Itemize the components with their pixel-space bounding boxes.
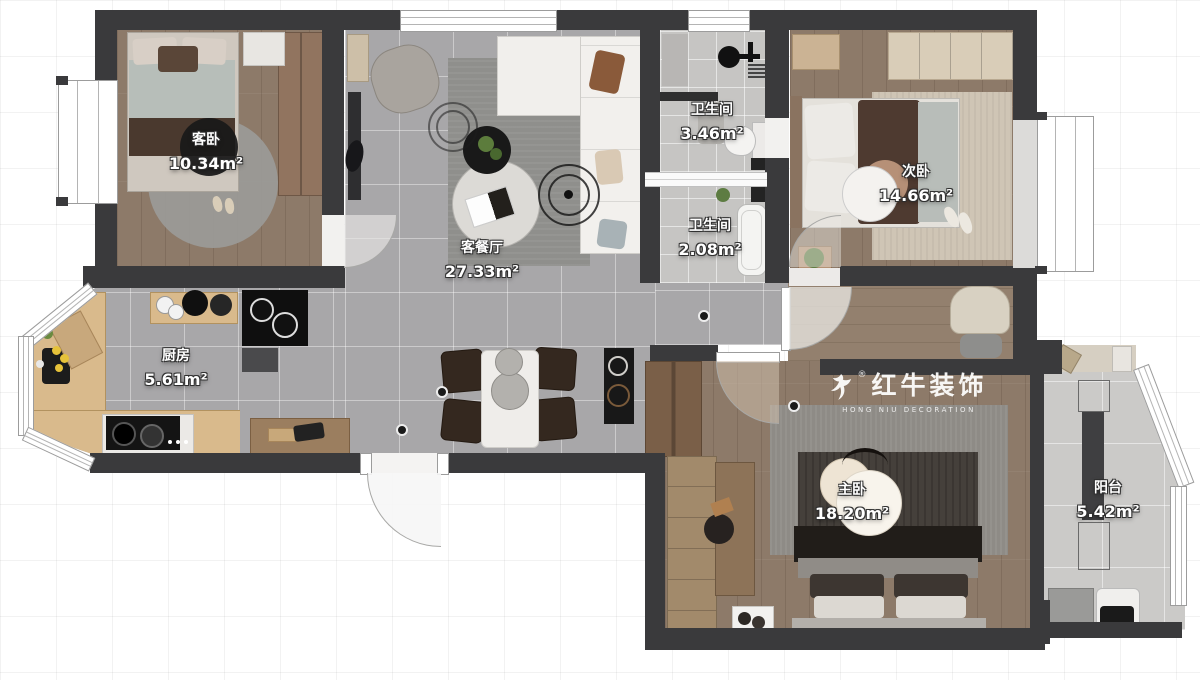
right-bay-window [1037, 116, 1094, 272]
vestibule-ottoman [960, 334, 1002, 358]
dining-chair-1 [440, 348, 486, 394]
sideboard-cup-1 [608, 356, 628, 376]
second-door-opening [789, 268, 840, 286]
bathtub-inner [741, 210, 762, 270]
dining-chair-3 [533, 347, 578, 392]
left-bay-window [58, 80, 118, 204]
sofa-pillow-beige [594, 149, 623, 186]
sofa-chaise [497, 36, 581, 116]
vestibule-armchair [950, 286, 1010, 334]
kitchen-lemon-1 [52, 346, 61, 355]
room-label-guest-bedroom: 客卧 10.34m² [169, 130, 243, 176]
registered-mark: ® [857, 370, 866, 380]
wall-bottom-left [90, 453, 367, 473]
room-area: 18.20m² [815, 502, 889, 527]
kitchen-lemon-3 [55, 364, 63, 372]
wall-left-upper [95, 10, 117, 82]
wall-bath-left [640, 10, 660, 283]
wall-second-bottom [840, 266, 1013, 286]
ceiling-light-marker-2 [698, 310, 710, 322]
floor-plan: 客卧 10.34m² 客餐厅 27.33m² 卫生间 3.46m² 卫生间 2.… [0, 0, 1200, 680]
living-top-window [400, 10, 557, 32]
brand-watermark: ® 红牛装饰 HONG NIU DECORATION [824, 372, 994, 414]
kitchen-burner-1 [112, 422, 136, 446]
ceiling-light-marker-4 [396, 424, 408, 436]
wall-balcony-bottom [1040, 622, 1182, 638]
fan-symbol-center [564, 190, 573, 199]
bath-top-window [688, 10, 750, 32]
brand-subtitle: HONG NIU DECORATION [842, 406, 976, 414]
room-label-living-dining: 客餐厅 27.33m² [445, 238, 519, 284]
bath-main-grate [748, 64, 766, 78]
dining-chair-2 [440, 398, 486, 444]
living-bookshelf [347, 34, 369, 82]
master-pillow-light-1 [814, 596, 884, 618]
master-desk-chair [704, 514, 734, 544]
room-name: 次卧 [902, 162, 930, 184]
wall-balcony-divider [1030, 374, 1044, 630]
bath-small-plant [716, 188, 730, 202]
right-bay-corner-top [1035, 112, 1047, 120]
wall-bottom-entry-right [440, 453, 665, 473]
room-name: 卫生间 [691, 100, 733, 122]
wall-master-left [645, 453, 665, 650]
sofa-pillow-gray [596, 218, 628, 250]
master-pillow-dark-2 [894, 574, 968, 598]
master-pillow-dark-1 [810, 574, 884, 598]
kitchen-knob-1 [168, 440, 172, 444]
kitchen-knob-3 [184, 440, 188, 444]
kitchen-knob-2 [176, 440, 180, 444]
bath-main-faucet-stem [748, 42, 753, 62]
entry-door-jamb-left [360, 453, 372, 475]
ceiling-light-marker-1 [436, 386, 448, 398]
second-dresser [792, 34, 840, 70]
room-label-bathroom-main: 卫生间 3.46m² [680, 100, 743, 146]
room-label-kitchen: 厨房 5.61m² [144, 346, 207, 392]
kitchen-plate-2 [168, 304, 184, 320]
left-bay-corner-bottom [56, 197, 68, 206]
wall-corridor-bottom [650, 345, 718, 361]
kitchen-pot-2 [210, 294, 232, 316]
kitchen-cabinet-small [242, 348, 278, 372]
entry-door-threshold [370, 453, 437, 473]
wall-right-upper [1013, 10, 1037, 120]
bath-sliding-door [645, 172, 767, 187]
balcony-outline-bottom [1078, 522, 1110, 570]
left-bay-corner-top [56, 76, 68, 85]
kitchen-burner-2 [140, 424, 164, 448]
brand-name: 红牛装饰 [871, 372, 987, 400]
kitchen-bay-window-mid [18, 336, 34, 436]
ceiling-light-marker-3 [788, 400, 800, 412]
headphones-arc [842, 448, 888, 482]
room-name: 客卧 [192, 130, 220, 152]
guest-pillow-dark [158, 46, 198, 72]
right-bay-corner-bottom [1035, 266, 1047, 274]
wall-top [95, 10, 1037, 30]
second-wardrobe [888, 32, 1015, 80]
room-label-master-bedroom: 主卧 18.20m² [815, 480, 889, 526]
kitchen-faucet [36, 360, 44, 368]
guest-cabinet-box [243, 32, 285, 66]
room-area: 27.33m² [445, 260, 519, 285]
room-name: 客餐厅 [461, 238, 503, 260]
corridor-floor [655, 283, 788, 345]
dining-plate-large [491, 372, 529, 410]
room-area: 3.46m² [680, 122, 743, 147]
master-closet-door-panel [645, 361, 702, 457]
entry-door-jamb-right [437, 453, 449, 475]
entry-bench-deco [268, 428, 296, 442]
fridge-pot-2 [272, 312, 298, 338]
room-label-balcony: 阳台 5.42m² [1076, 478, 1139, 524]
room-area: 10.34m² [169, 152, 243, 177]
guest-door-opening [322, 215, 344, 266]
right-bay-sill [1013, 120, 1037, 268]
room-label-bathroom-small: 卫生间 2.08m² [678, 216, 741, 262]
master-throw-dark [794, 526, 982, 562]
room-name: 厨房 [162, 346, 190, 368]
room-name: 阳台 [1094, 478, 1122, 500]
bath-main-corner-box [751, 158, 765, 170]
second-bed-headboard [790, 96, 802, 228]
wall-master-bottom [655, 628, 1045, 650]
sideboard-cup-2 [607, 384, 630, 407]
room-area: 5.42m² [1076, 500, 1139, 525]
balcony-outline-top [1078, 380, 1110, 412]
room-area: 14.66m² [879, 184, 953, 209]
wall-guest-bottom [83, 266, 345, 288]
balcony-bottles [1112, 346, 1132, 372]
master-tray-cup-1 [738, 612, 751, 625]
decor-circle-inner [436, 110, 470, 144]
bath-main-niche [662, 34, 688, 86]
room-label-second-bedroom: 次卧 14.66m² [879, 162, 953, 208]
plant-leaf-2 [490, 148, 502, 160]
bath-main-door-opening [765, 118, 789, 158]
hongniu-bull-logo-icon [830, 372, 852, 404]
wall-balcony-corner-block [1028, 340, 1062, 374]
room-name: 卫生间 [689, 216, 731, 238]
entry-door-swing [367, 473, 441, 547]
master-wardrobe [667, 456, 717, 642]
second-pillow-1 [804, 102, 856, 159]
fridge-pot-1 [250, 298, 274, 322]
room-area: 5.61m² [144, 368, 207, 393]
room-area: 2.08m² [678, 238, 741, 263]
wall-guest-right [322, 10, 344, 215]
balcony-window-right [1170, 486, 1187, 606]
room-name: 主卧 [838, 480, 866, 502]
kitchen-lemon-2 [60, 354, 69, 363]
master-pillow-light-2 [896, 596, 966, 618]
bath-small-corner-box [751, 186, 765, 202]
kitchen-pot-1 [182, 290, 208, 316]
dining-chair-4 [532, 396, 578, 442]
dining-plate-small [495, 348, 523, 376]
